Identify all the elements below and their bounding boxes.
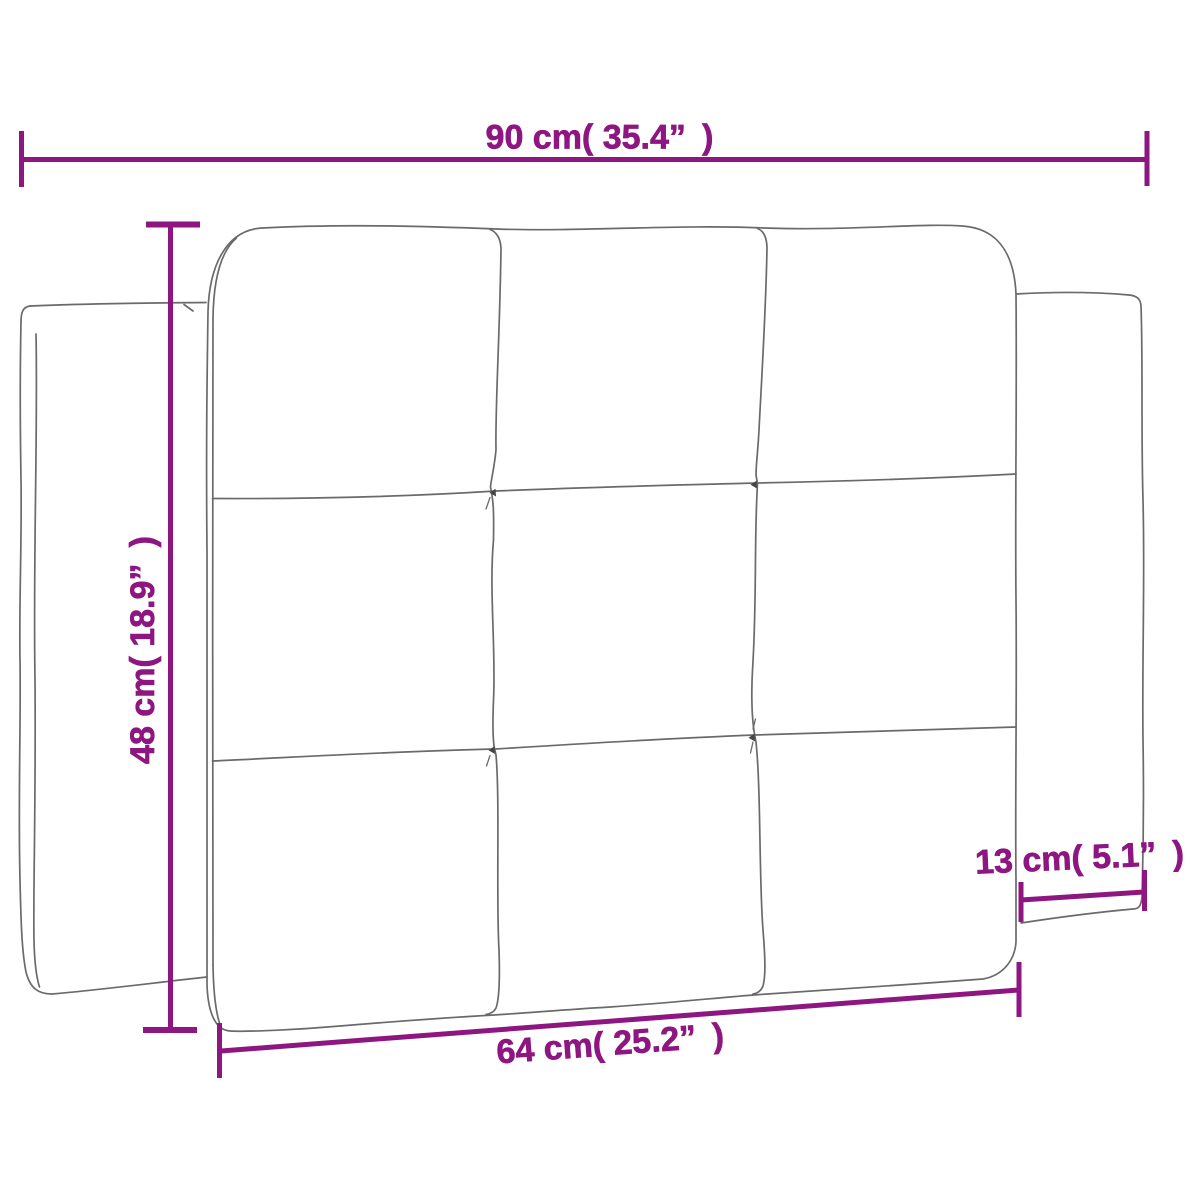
svg-text:48 cm( 18.9” ): 48 cm( 18.9” )	[124, 536, 162, 764]
svg-text:64 cm( 25.2” ): 64 cm( 25.2” )	[495, 1017, 725, 1072]
svg-text:90 cm( 35.4” ): 90 cm( 35.4” )	[486, 119, 714, 157]
svg-text:13 cm( 5.1” ): 13 cm( 5.1” )	[974, 834, 1185, 881]
